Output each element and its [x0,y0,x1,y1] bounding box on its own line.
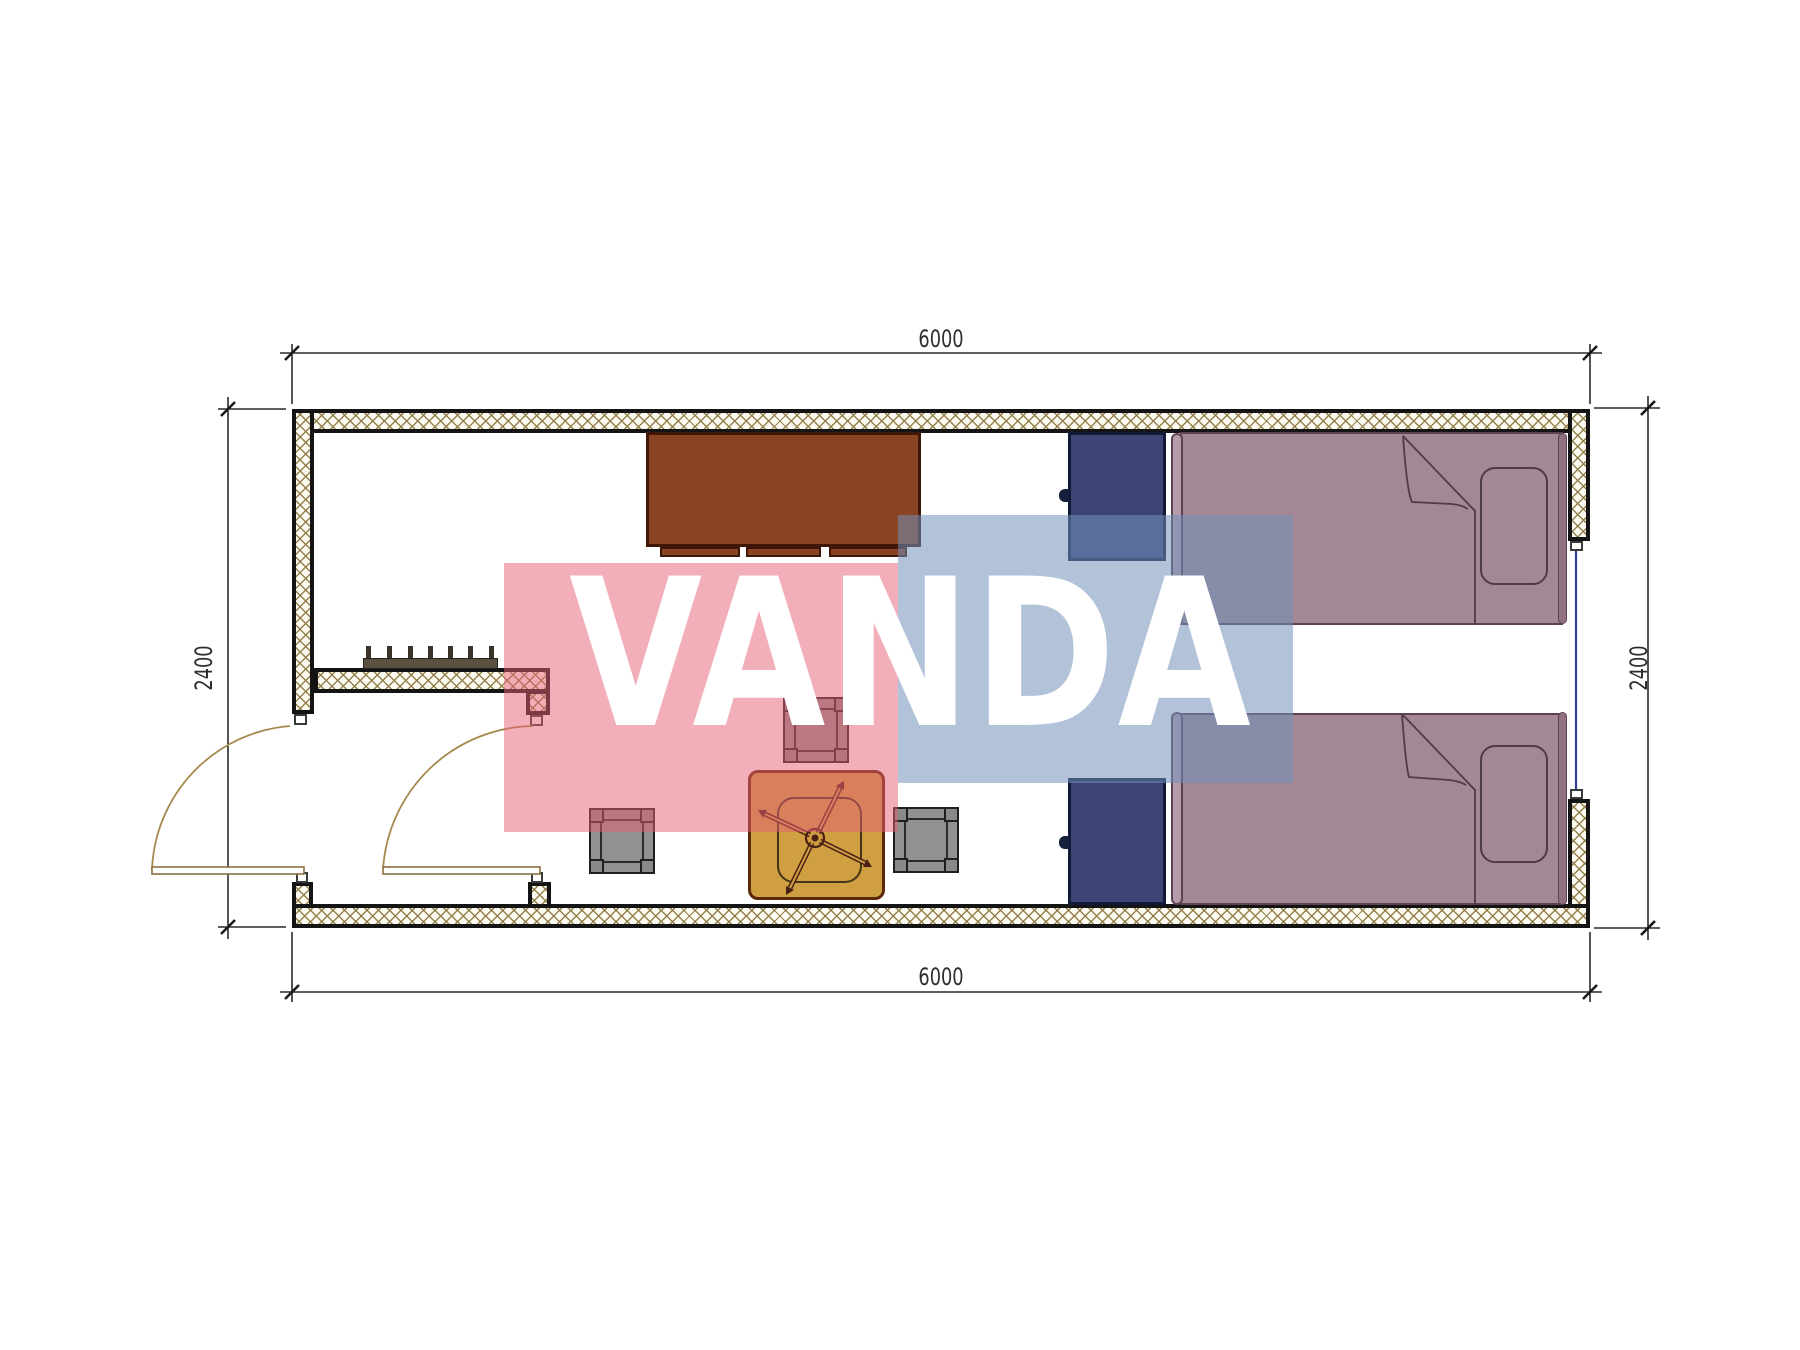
dimension-label-left: 2400 [191,616,217,720]
bed-bottom-blanket-fold [1402,714,1475,904]
entry-door-leaf [152,867,304,874]
watermark-text: VANDA [569,545,1241,765]
dimension-label-right: 2400 [1626,616,1652,720]
floor-plan-canvas: VANDA 6000 6000 2400 2400 [0,0,1800,1350]
interior-door-leaf [383,867,540,874]
dimension-label-top: 6000 [882,326,1000,352]
entry-door-arc [152,726,290,870]
dimension-label-bottom: 6000 [882,964,1000,990]
bed-top-blanket-fold [1403,436,1475,624]
